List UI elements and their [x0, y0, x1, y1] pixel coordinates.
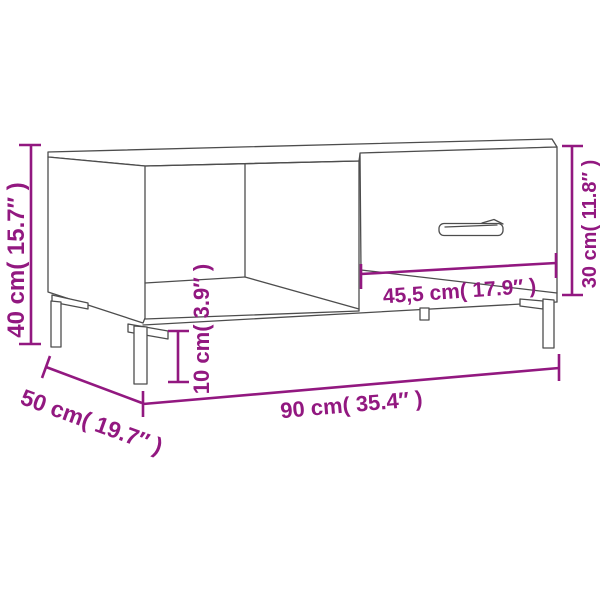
dimension-diagram: 40 cm( 15.7″ ) 30 cm( 11.8″ ) 10 cm( 3.9… — [0, 0, 600, 600]
dim-label-40: 40 cm( 15.7″ ) — [3, 182, 30, 338]
dimension-leg-height: 10 cm( 3.9″ ) — [168, 264, 214, 394]
leg-front-right-post — [543, 299, 554, 348]
table-drawing — [48, 139, 557, 384]
leg-front-right-arm — [520, 299, 543, 309]
dimension-drawer-height: 30 cm( 11.8″ ) — [562, 146, 600, 295]
dimension-overall-height: 40 cm( 15.7″ ) — [3, 145, 41, 344]
dim-label-45: 45,5 cm( 17.9″ ) — [382, 275, 537, 309]
compartment-inner-bottom-back — [245, 277, 359, 309]
leg-back-middle-post — [420, 308, 429, 320]
dim-label-30: 30 cm( 11.8″ ) — [579, 160, 600, 289]
leg-back-left-post — [51, 301, 61, 347]
leg-front-left-post — [134, 326, 147, 384]
dim-label-10: 10 cm( 3.9″ ) — [189, 264, 214, 394]
dim-line-10 — [168, 331, 189, 382]
